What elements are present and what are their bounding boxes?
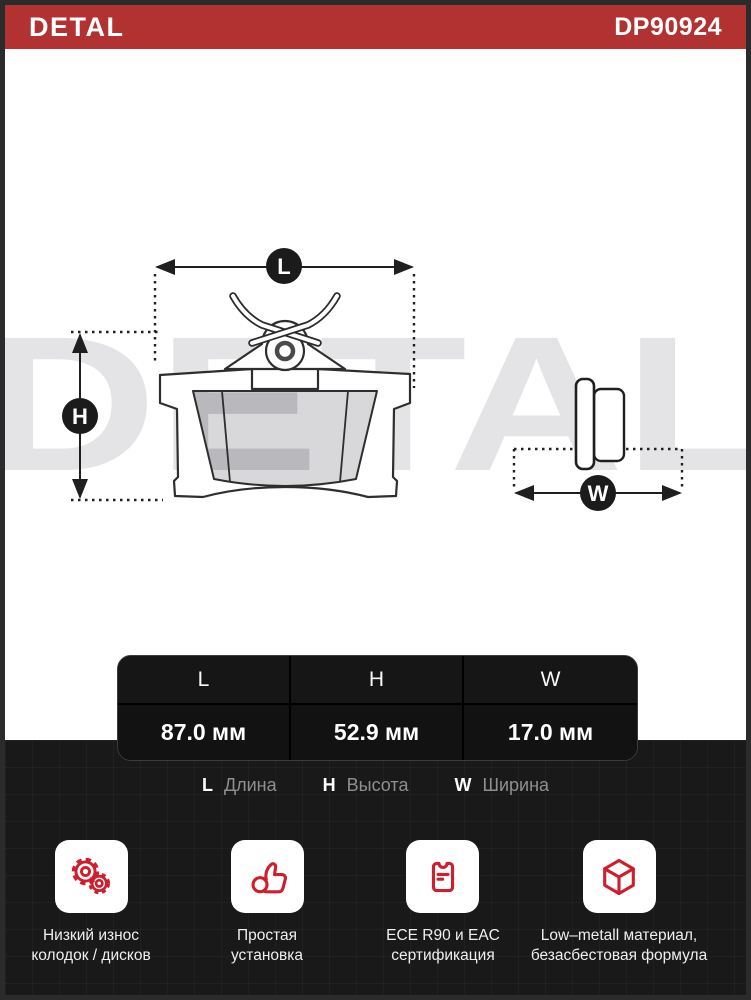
features-row: Низкий износ колодок / дисков Простая ус… <box>3 840 748 967</box>
part-number: DP90924 <box>614 13 722 42</box>
brake-pad-diagram: DETAL DETAL L <box>5 49 746 740</box>
gears-icon <box>69 855 113 899</box>
feature-label: ECE R90 и EAC сертификация <box>386 926 500 967</box>
table-value-width: 17.0 мм <box>464 705 637 760</box>
dimensions-table: L H W 87.0 мм 52.9 мм 17.0 мм <box>117 655 638 761</box>
feature-low-wear: Низкий износ колодок / дисков <box>31 840 150 967</box>
feature-tile <box>583 840 656 913</box>
legend-word: Высота <box>347 775 409 796</box>
side-view-friction <box>594 389 624 461</box>
feature-label: Low–metall материал, безасбестовая форму… <box>531 926 707 967</box>
table-header-height: H <box>291 656 464 705</box>
brand-logo: DETAL <box>29 12 125 43</box>
technical-drawing-area: DETAL DETAL L <box>5 49 746 740</box>
certificate-icon <box>421 855 465 899</box>
height-badge-label: H <box>72 404 88 429</box>
table-value-height: 52.9 мм <box>291 705 464 760</box>
width-badge-label: W <box>588 481 609 506</box>
feature-easy-install: Простая установка <box>231 840 304 967</box>
legend-word: Длина <box>224 775 277 796</box>
header-bar: DETAL DP90924 <box>5 5 746 49</box>
legend: L Длина H Высота W Ширина <box>0 775 751 796</box>
product-card: DETAL DP90924 DETAL DETAL <box>0 0 751 1000</box>
legend-letter: W <box>454 775 471 796</box>
feature-tile <box>406 840 479 913</box>
legend-item-width: W Ширина <box>454 775 549 796</box>
legend-item-length: L Длина <box>202 775 277 796</box>
table-header-length: L <box>118 656 291 705</box>
length-badge-label: L <box>277 254 290 279</box>
feature-certification: ECE R90 и EAC сертификация <box>386 840 500 967</box>
legend-word: Ширина <box>482 775 549 796</box>
legend-item-height: H Высота <box>323 775 409 796</box>
feature-material: Low–metall материал, безасбестовая форму… <box>531 840 707 967</box>
feature-tile <box>55 840 128 913</box>
feature-label: Простая установка <box>231 926 303 967</box>
feature-tile <box>231 840 304 913</box>
cube-icon <box>597 855 641 899</box>
legend-letter: H <box>323 775 336 796</box>
legend-letter: L <box>202 775 213 796</box>
table-value-length: 87.0 мм <box>118 705 291 760</box>
hub-hole <box>277 343 293 359</box>
table-header-width: W <box>464 656 637 705</box>
feature-label: Низкий износ колодок / дисков <box>31 926 150 967</box>
thumb-up-icon <box>245 855 289 899</box>
side-view-backplate <box>576 379 594 469</box>
